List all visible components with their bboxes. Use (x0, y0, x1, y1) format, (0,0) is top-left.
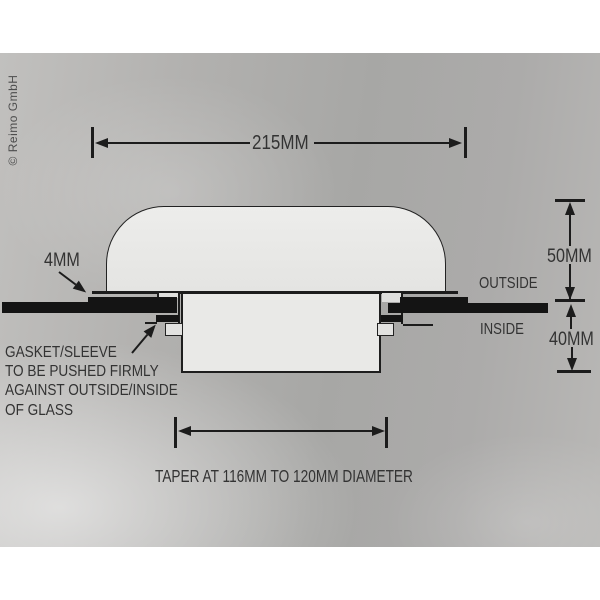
gasket-note-line1: GASKET/SLEEVE (5, 345, 117, 361)
glass-panel-left (2, 302, 177, 313)
dim-tick (557, 370, 591, 373)
vent-cross-section-diagram: © Reimo GmbH 215MM 4MM OUTSIDE INSIDE (0, 0, 600, 600)
dim-line (108, 142, 250, 144)
dim-tick (91, 127, 94, 158)
gasket-note-line2: TO BE PUSHED FIRMLY (5, 364, 159, 380)
dim-line (314, 142, 450, 144)
retainer-clip-left (165, 323, 183, 336)
vent-tube-body (181, 294, 381, 373)
gasket-edge-line-right (403, 324, 433, 326)
sleeve-right (382, 293, 401, 302)
arrow-right-icon (449, 138, 462, 148)
gasket-note-line3: AGAINST OUTSIDE/INSIDE (5, 383, 178, 399)
dim-tick (555, 299, 585, 302)
gasket-inner-right (381, 315, 403, 322)
outside-label: OUTSIDE (479, 276, 538, 291)
dim-tick (385, 417, 388, 448)
vent-dome-cap (106, 206, 446, 293)
width-dim-label: 215MM (252, 133, 309, 153)
dim-tick (174, 417, 177, 448)
copyright-watermark: © Reimo GmbH (6, 65, 20, 175)
dim-line (570, 315, 572, 329)
dim-line (569, 213, 571, 246)
retainer-clip-right (377, 323, 394, 336)
arrow-right-icon (372, 426, 385, 436)
taper-note-label: TAPER AT 116MM TO 120MM DIAMETER (155, 468, 413, 485)
dim-line (190, 430, 373, 432)
dim-tick (464, 127, 467, 158)
glass-panel-right (388, 303, 548, 313)
gasket-outer-lip-right (400, 297, 468, 304)
inside-label: INSIDE (480, 322, 524, 337)
gasket-note-line4: OF GLASS (5, 403, 73, 419)
arrow-left-icon (95, 138, 108, 148)
dim-line (571, 347, 573, 358)
gasket-inner-left (156, 315, 179, 322)
gasket-outer-lip-left (88, 297, 177, 303)
